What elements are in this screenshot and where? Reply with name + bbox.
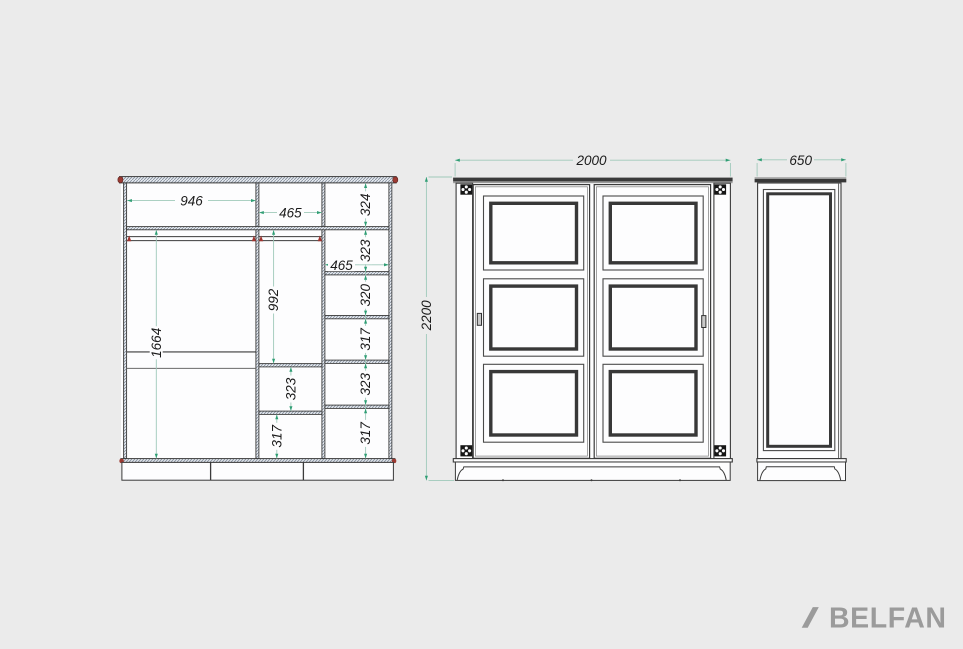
svg-text:2200: 2200 xyxy=(419,300,434,332)
svg-text:323: 323 xyxy=(358,372,373,395)
svg-text:317: 317 xyxy=(358,328,373,351)
svg-text:465: 465 xyxy=(279,206,302,221)
svg-text:1664: 1664 xyxy=(149,328,164,358)
svg-text:2000: 2000 xyxy=(575,153,607,168)
svg-text:317: 317 xyxy=(269,425,284,448)
svg-text:323: 323 xyxy=(283,377,298,400)
svg-text:465: 465 xyxy=(330,258,353,273)
svg-text:946: 946 xyxy=(180,194,203,209)
svg-text:650: 650 xyxy=(789,153,812,168)
svg-text:320: 320 xyxy=(358,283,373,306)
svg-text:992: 992 xyxy=(266,288,281,311)
svg-text:323: 323 xyxy=(358,239,373,262)
svg-text:BELFAN: BELFAN xyxy=(829,603,947,635)
svg-text:317: 317 xyxy=(358,422,373,445)
svg-text:324: 324 xyxy=(358,194,373,217)
